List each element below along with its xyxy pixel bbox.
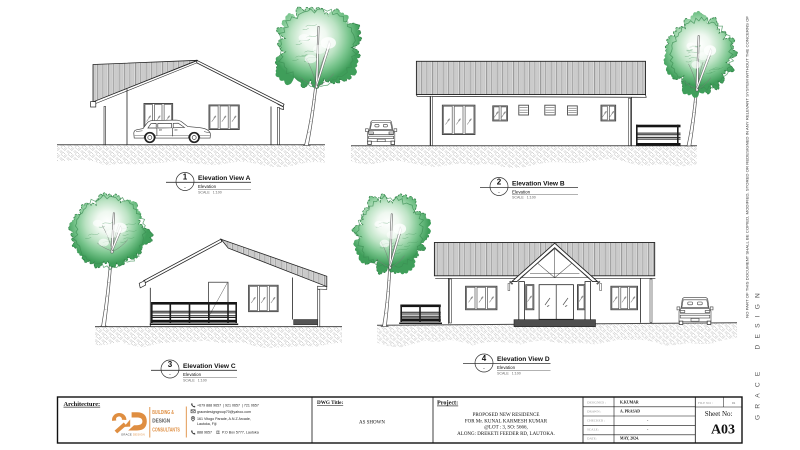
svg-text:P.O Box 5777, Lautoka: P.O Box 5777, Lautoka [222,431,259,435]
svg-text:SCALE 1:100: SCALE 1:100 [497,372,521,376]
svg-text:K.KUMAR: K.KUMAR [620,400,639,404]
svg-text:NO PART OF THIS DOCUMENT SHALL: NO PART OF THIS DOCUMENT SHALL BE COPIED… [746,16,750,318]
svg-text:Elevation: Elevation [198,184,217,189]
svg-text:161 Vitogo Parade, A.N.Z Arcad: 161 Vitogo Parade, A.N.Z Arcade, [197,417,251,421]
svg-text:Elevation View A: Elevation View A [198,175,251,182]
svg-text:BUILDING &: BUILDING & [152,410,174,416]
svg-text:MAY, 2024.: MAY, 2024. [620,436,639,440]
svg-text:Elevation View B: Elevation View B [512,180,565,187]
svg-text:Elevation: Elevation [183,372,202,377]
svg-text:1: 1 [183,173,188,182]
svg-text:Lautoka, Fiji: Lautoka, Fiji [197,422,217,426]
svg-text:DRAWN :: DRAWN : [587,409,601,413]
svg-text:DATE:: DATE: [587,436,597,440]
svg-text:A. PRASAD: A. PRASAD [620,409,640,413]
svg-text:888 9657: 888 9657 [197,431,212,435]
svg-text:GRACE DESIGN: GRACE DESIGN [755,287,762,420]
svg-text:DESIGN: DESIGN [152,418,170,424]
svg-text:+679 888 9657 | 921 0657 | 7: +679 888 9657 | 921 0657 | 721 0657 [197,404,259,408]
svg-text:SCALE:: SCALE: [587,427,599,431]
svg-text:ALONG: DREKETI FEEDER RD, LAUT: ALONG: DREKETI FEEDER RD, LAUTOKA. [457,432,555,437]
svg-text:Architecture:: Architecture: [64,401,101,408]
svg-text:Elevation: Elevation [497,365,516,370]
svg-text:4: 4 [482,354,487,363]
svg-text:GRACE DESIGN: GRACE DESIGN [121,432,145,436]
svg-text:CONSULTANTS: CONSULTANTS [152,428,180,434]
svg-text:SCALE 1:100: SCALE 1:100 [183,379,207,383]
svg-text:gracedesigngroup70@yahoo.com: gracedesigngroup70@yahoo.com [197,410,251,414]
svg-text:PROPOSED NEW RESIDENCE: PROPOSED NEW RESIDENCE [473,413,540,418]
svg-text:AS SHOWN: AS SHOWN [359,420,385,425]
svg-text:FOR Mr. KUNAL KARMESH KUMAR: FOR Mr. KUNAL KARMESH KUMAR [465,419,548,424]
svg-text:Elevation View C: Elevation View C [183,363,236,370]
svg-text:Sheet No:: Sheet No: [705,410,733,418]
svg-text:Elevation: Elevation [512,189,531,194]
svg-text:A03: A03 [711,423,735,438]
svg-text:01: 01 [732,401,736,405]
svg-text:SCALE 1:100: SCALE 1:100 [512,196,536,200]
svg-text:DWG Title:: DWG Title: [317,400,343,406]
svg-text:@LOT : 3, SO: 5666,: @LOT : 3, SO: 5666, [484,426,527,431]
svg-text:DESIGNED :: DESIGNED : [587,400,606,404]
svg-text:3: 3 [168,360,173,369]
svg-text:2: 2 [497,178,502,187]
svg-text:CHECKED :: CHECKED : [587,418,605,422]
svg-text:FILE NO :: FILE NO : [698,401,713,405]
svg-text:SCALE 1:100: SCALE 1:100 [198,191,222,195]
svg-text:Project:: Project: [437,400,458,407]
svg-text:Elevation View D: Elevation View D [497,356,550,363]
